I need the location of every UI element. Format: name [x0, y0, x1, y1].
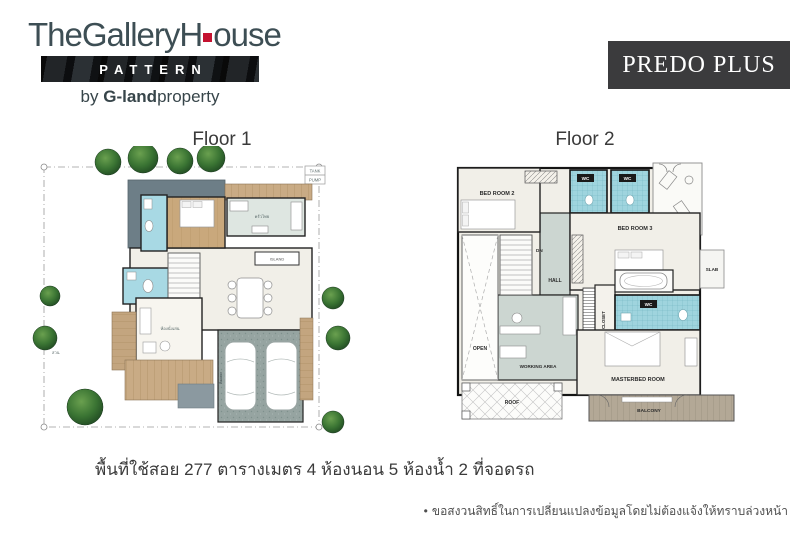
masterbed-room: MASTERBED ROOM	[577, 330, 700, 395]
car-1	[225, 342, 256, 410]
slab-label: SLAB	[706, 267, 719, 272]
wc2: WC	[611, 170, 649, 213]
brand-logo: TheGalleryHouse PATTERN by G-landpropert…	[28, 16, 272, 107]
area-summary: พื้นที่ใช้สอย 277 ตารางเมตร 4 ห้องนอน 5 …	[95, 456, 535, 483]
closet-strip	[525, 171, 557, 183]
carport: ที่จอดรถ	[218, 330, 303, 422]
roof-label: ROOF	[505, 400, 519, 406]
floor2-title: Floor 2	[515, 129, 655, 151]
bedroom1	[167, 197, 225, 248]
model-name-box: PREDO PLUS	[608, 41, 790, 89]
pattern-banner: PATTERN	[41, 56, 259, 82]
kitchen-label: ครัวไทย	[255, 213, 270, 219]
entry-porch	[178, 384, 214, 408]
bedroom2-label: BED ROOM 2	[480, 191, 515, 197]
slab: SLAB	[700, 250, 724, 288]
balcony: BALCONY	[589, 395, 734, 421]
open-void: OPEN	[462, 235, 498, 380]
open-label: OPEN	[473, 346, 488, 352]
kitchen: ครัวไทย	[227, 198, 305, 236]
garden-label: สวน	[52, 350, 60, 355]
floor1-plan: TANK PUMP ครัวไทย	[28, 146, 363, 441]
deck-right	[300, 318, 313, 400]
parking-label: ที่จอดรถ	[218, 372, 223, 384]
model-name: PREDO PLUS	[622, 52, 775, 79]
dn-label: DN	[536, 248, 543, 253]
brand-red-square-icon	[203, 33, 212, 42]
stairs	[168, 253, 200, 305]
island-counter: ISLAND	[255, 252, 299, 265]
brand-byline: by G-landproperty	[28, 87, 272, 107]
wc1: WC	[570, 170, 607, 213]
wc3-label: WC	[645, 302, 653, 307]
bedroom3-label: BED ROOM 3	[618, 226, 653, 232]
floor2-plan: BED ROOM 2 WC WC BED ROOM 3 OPEN	[437, 150, 747, 440]
pattern-label: PATTERN	[92, 62, 207, 77]
hall-label: HALL	[548, 278, 561, 284]
disclaimer-text: ขอสงวนสิทธิ์ในการเปลี่ยนแปลงข้อมูลโดยไม่…	[432, 504, 788, 518]
masterbed-label: MASTERBED ROOM	[611, 377, 665, 383]
brand-wordmark: TheGalleryHouse	[28, 16, 272, 54]
island-label: ISLAND	[270, 257, 285, 262]
pump-label: PUMP	[309, 178, 321, 183]
balcony-label: BALCONY	[637, 408, 662, 414]
living-label: ห้องนั่งเล่น	[160, 325, 179, 331]
living-room: ห้องนั่งเล่น	[136, 298, 202, 366]
tank-pump-box: TANK PUMP	[305, 166, 325, 184]
car-2	[266, 342, 297, 410]
working-area-label: WORKING AREA	[520, 364, 558, 369]
disclaimer: •ขอสงวนสิทธิ์ในการเปลี่ยนแปลงข้อมูลโดยไม…	[424, 502, 788, 521]
wc2-label: WC	[624, 176, 632, 181]
dining-set	[228, 278, 272, 318]
tank-label: TANK	[310, 169, 321, 174]
bathroom-top	[141, 195, 167, 251]
roof-below: ROOF	[462, 383, 562, 419]
wc1-label: WC	[582, 176, 590, 181]
stairs-floor2	[500, 235, 532, 295]
disclaimer-bullet: •	[424, 504, 428, 518]
